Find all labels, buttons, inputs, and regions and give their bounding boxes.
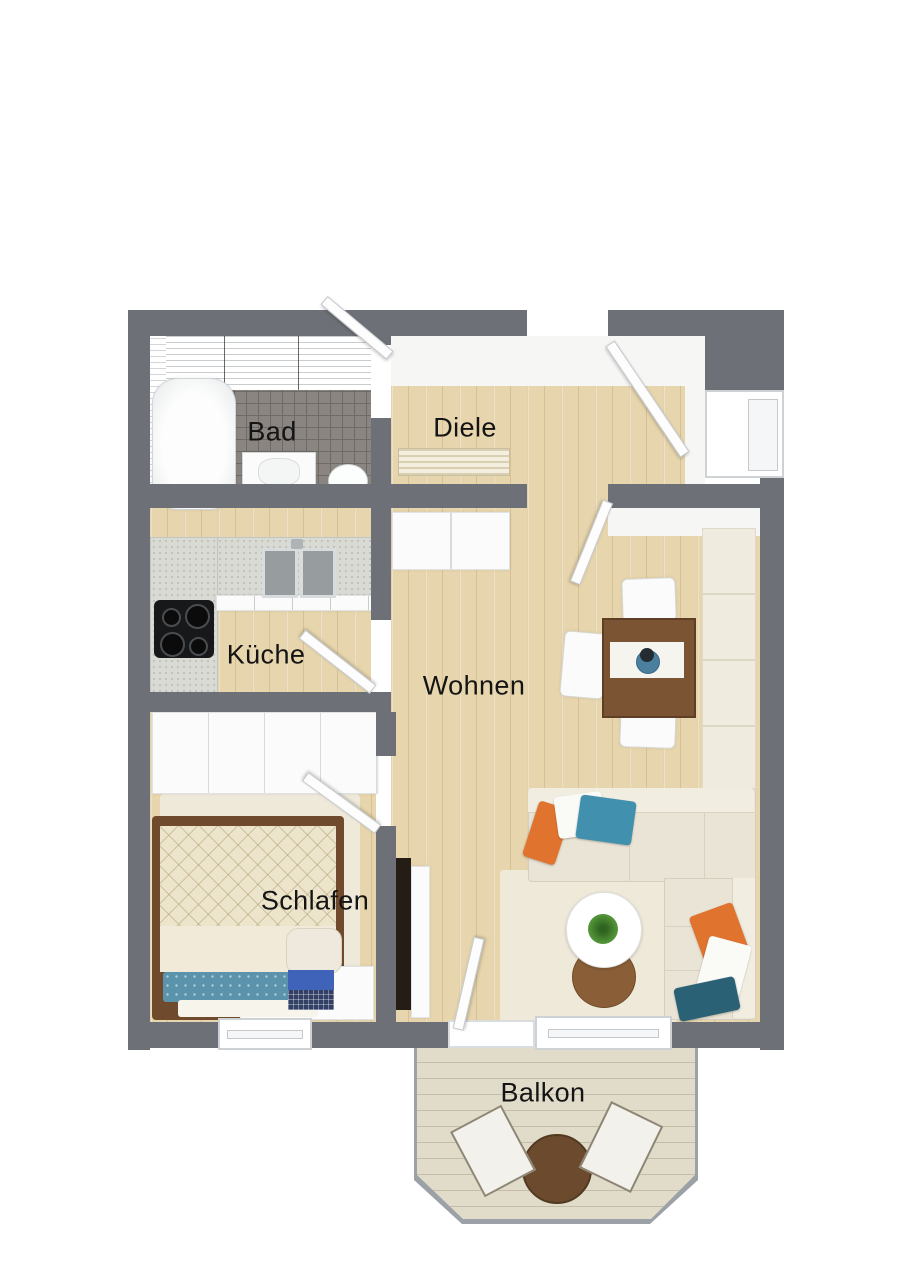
outer-wall-top-left [128, 310, 527, 336]
wall-kueche-wohnen [371, 508, 391, 620]
pillow-blue-top [575, 794, 637, 845]
burner-1 [162, 608, 181, 627]
room-label-wohnen: Wohnen [423, 671, 525, 702]
burner-3 [160, 632, 185, 657]
window-glass [748, 399, 777, 472]
outer-wall-top-right [608, 310, 784, 336]
kitchen-sink-right [300, 548, 336, 598]
room-label-balkon: Balkon [501, 1078, 586, 1109]
sideboard [392, 512, 510, 570]
wall-bad-diele-lower [371, 418, 391, 484]
wall-kueche-schlafen [128, 692, 391, 712]
wall-schlafen-wohnen-lower [376, 826, 396, 1022]
window-glass [227, 1030, 303, 1039]
tv-panel [396, 858, 411, 1010]
wall-schlafen-wohnen-upper [376, 712, 396, 756]
wardrobe [152, 712, 378, 794]
floor-plan: Bad Diele Küche Wohnen Schlafen Balkon [0, 0, 905, 1280]
outer-wall-left [128, 310, 150, 1050]
burner-2 [185, 604, 210, 629]
room-label-bad: Bad [247, 417, 296, 448]
desk-chair [286, 928, 342, 974]
wall-diele-wohnen [608, 484, 784, 508]
vase-plant [640, 648, 654, 662]
window-glass [548, 1029, 660, 1039]
diele-right-partition [685, 336, 705, 484]
burner-4 [189, 637, 208, 656]
tv-board [411, 866, 430, 1018]
kitchen-sink-left [262, 548, 298, 598]
wohnen-window [535, 1016, 672, 1050]
room-label-kueche: Küche [227, 640, 306, 671]
wall-bad-kueche [128, 484, 527, 508]
laptop-screen [288, 970, 334, 990]
diele-wohnen-passage-floor [527, 484, 608, 508]
schlafen-window [218, 1018, 312, 1050]
dining-chair-top [621, 577, 677, 623]
kitchen-faucet [291, 539, 303, 549]
room-label-diele: Diele [433, 413, 497, 444]
wall-bench [702, 528, 756, 792]
washbasin-bowl [258, 458, 300, 486]
right-wall-window [705, 390, 784, 478]
room-label-schlafen: Schlafen [261, 886, 369, 917]
plant [588, 914, 618, 944]
doormat [398, 448, 510, 476]
laptop-keyboard [288, 990, 334, 1010]
